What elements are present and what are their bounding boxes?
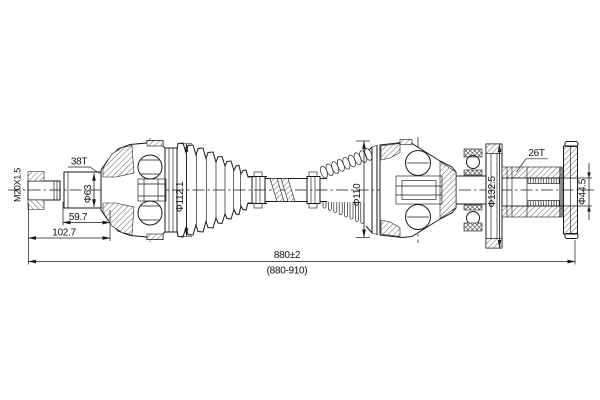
boot-coil [319, 148, 373, 179]
leader-38t [90, 167, 100, 174]
bell-hatch-bottom [103, 203, 134, 235]
technical-drawing-canvas: M20X1.5 38T Φ63 Φ112.1 Φ110 Φ132.5 26T Φ… [0, 0, 600, 400]
len-shaft-section-label: 59.7 [69, 212, 88, 223]
bell-cap-bottom [147, 234, 163, 240]
bell-hatch-top [103, 146, 134, 178]
boot-lower-profile [177, 203, 256, 237]
threaded-stub [28, 172, 60, 210]
boot-upper-profile [177, 143, 256, 177]
outer-spline-teeth-label: 38T [71, 157, 88, 168]
clamp-ear-bottom [254, 204, 262, 209]
dia-inner-joint-label: Φ110 [352, 183, 363, 206]
dia-spline-bore-label: Φ44.5 [578, 178, 589, 205]
thread-hatch-bottom [28, 200, 44, 210]
outer-cv-joint [101, 141, 177, 240]
thread-body [28, 181, 60, 200]
clamp-ear-top [309, 172, 317, 177]
bearing-ball-bottom [467, 212, 480, 225]
tube-wall-top [502, 167, 562, 178]
tube-wall-bottom [502, 206, 562, 217]
len-to-joint-label: 102.7 [52, 228, 76, 239]
bearing-ball-top [467, 156, 480, 169]
inner-cv-joint [380, 140, 456, 238]
housing-cap [400, 140, 412, 145]
bearing-race-bottom [464, 223, 482, 231]
inner-spline-teeth-label: 26T [528, 148, 545, 159]
clamp-ear-top [254, 172, 262, 177]
len-overall-label: 880±2 [274, 250, 301, 261]
len-overall-range-label: (880-910) [267, 266, 308, 277]
dia-shaft-label: Φ63 [83, 184, 94, 203]
thread-spec-label: M20X1.5 [13, 168, 23, 202]
centerlines [8, 137, 596, 243]
dia-outer-boot-label: Φ112.1 [175, 181, 186, 212]
dia-flange-disc-label: Φ132.5 [487, 176, 498, 208]
spline-teeth [528, 178, 560, 206]
thread-hatch-top [28, 172, 44, 182]
bell-cap-top [147, 141, 163, 147]
cv-axle-drawing: M20X1.5 38T Φ63 Φ112.1 Φ110 Φ132.5 26T Φ… [0, 0, 600, 400]
clamp-ear-bottom [309, 204, 317, 209]
